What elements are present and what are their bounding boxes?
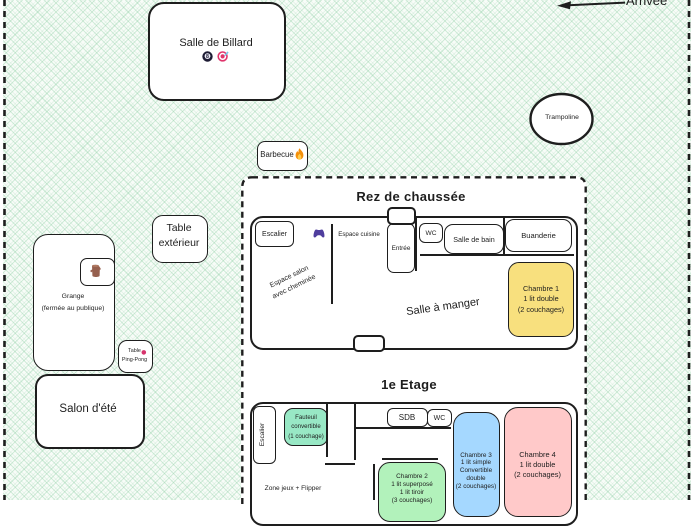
svg-text:8: 8 xyxy=(206,54,209,60)
